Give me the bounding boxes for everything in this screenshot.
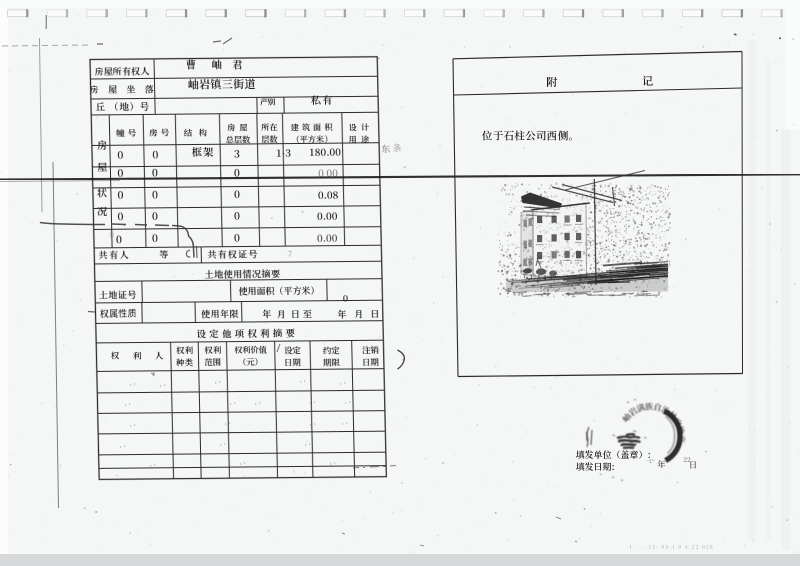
- svg-text:年: 年: [337, 306, 347, 320]
- svg-text:日: 日: [689, 459, 698, 471]
- svg-text:总层数: 总层数: [226, 134, 252, 145]
- svg-text:日期: 日期: [284, 356, 302, 368]
- svg-text:月: 月: [277, 306, 286, 320]
- svg-text:岫: 岫: [212, 57, 223, 72]
- svg-text:填发日期:: 填发日期:: [576, 460, 615, 473]
- svg-text:-c-: -c-: [647, 456, 656, 466]
- svg-text:日: 日: [291, 306, 300, 320]
- svg-text:设定: 设定: [284, 344, 302, 356]
- svg-text:0: 0: [109, 228, 114, 241]
- svg-text:等: 等: [159, 248, 168, 261]
- svg-text:0: 0: [152, 187, 158, 202]
- svg-text:1 . .. 12: 05.1 0 5-22 028: 1 . .. 12: 05.1 0 5-22 028: [629, 544, 714, 551]
- svg-text:0: 0: [234, 208, 240, 223]
- svg-text:约定: 约定: [323, 344, 341, 356]
- svg-text:0.00: 0.00: [317, 230, 338, 245]
- svg-text:使用年限: 使用年限: [200, 307, 240, 320]
- svg-text:7: 7: [288, 248, 293, 259]
- svg-text:状: 状: [97, 184, 108, 199]
- svg-text:年: 年: [657, 459, 666, 471]
- svg-text:设定他项权利摘要: 设定他项权利摘要: [195, 326, 298, 341]
- svg-text:3: 3: [234, 146, 240, 161]
- svg-text:所在: 所在: [261, 122, 278, 133]
- svg-text:权利: 权利: [204, 344, 222, 356]
- svg-text:土地证号: 土地证号: [99, 288, 137, 301]
- svg-text:共有人: 共有人: [98, 248, 130, 261]
- svg-text:岫岩镇三街道: 岫岩镇三街道: [188, 76, 256, 93]
- svg-text:房 屋: 房 屋: [226, 122, 249, 133]
- svg-text:范围: 范围: [203, 356, 222, 368]
- svg-text:0: 0: [117, 147, 123, 162]
- svg-text:0.00: 0.00: [317, 208, 338, 223]
- svg-text:0: 0: [234, 187, 240, 202]
- svg-text:房屋所有权人: 房屋所有权人: [94, 64, 149, 78]
- svg-text:房 号: 房 号: [148, 127, 170, 139]
- svg-text:位于石柱公司西侧。: 位于石柱公司西侧。: [482, 129, 579, 144]
- svg-text:期限: 期限: [323, 356, 341, 368]
- svg-text:丘 （地）号: 丘 （地）号: [95, 99, 150, 114]
- svg-text:幢 号: 幢 号: [116, 127, 137, 139]
- svg-text:利: 利: [133, 350, 142, 362]
- svg-text:0: 0: [343, 291, 348, 304]
- svg-text:（元）: （元）: [238, 357, 263, 368]
- svg-text:记: 记: [642, 73, 653, 89]
- svg-text:屋: 屋: [97, 159, 107, 174]
- svg-text:人: 人: [155, 350, 164, 362]
- svg-text:附: 附: [546, 74, 557, 90]
- svg-text:况: 况: [96, 203, 107, 218]
- svg-text:土地使用情况摘要: 土地使用情况摘要: [204, 266, 281, 281]
- svg-text:框架: 框架: [191, 145, 214, 160]
- svg-text:房 屋 坐 落: 房 屋 坐 落: [89, 82, 157, 96]
- svg-text:使用面积（平方米）: 使用面积（平方米）: [237, 284, 319, 298]
- svg-text:结 构: 结 构: [184, 127, 209, 139]
- svg-text:日: 日: [370, 306, 379, 320]
- svg-text:权: 权: [111, 350, 120, 362]
- svg-text:0: 0: [117, 187, 123, 202]
- svg-text:0: 0: [152, 231, 158, 246]
- svg-text:权利: 权利: [176, 344, 194, 356]
- svg-text:0: 0: [152, 147, 158, 162]
- svg-text:君: 君: [232, 57, 243, 72]
- svg-text:权利价值: 权利价值: [234, 345, 268, 356]
- svg-text:注销: 注销: [362, 344, 379, 356]
- svg-text:产: 产: [675, 433, 687, 443]
- svg-text:种类: 种类: [176, 356, 194, 368]
- svg-text:建 筑 面 积: 建 筑 面 积: [290, 122, 334, 133]
- svg-text:180.00: 180.00: [309, 143, 342, 158]
- svg-text:1-3: 1-3: [276, 144, 292, 159]
- svg-text:年: 年: [262, 306, 272, 320]
- svg-text:月: 月: [354, 306, 363, 320]
- svg-text:共有权证号: 共有权证号: [207, 247, 258, 260]
- svg-text:用 途: 用 途: [348, 134, 371, 145]
- svg-text:0: 0: [234, 230, 240, 245]
- svg-text:条: 条: [392, 141, 401, 154]
- svg-text:权属性质: 权属性质: [100, 307, 137, 320]
- svg-text:房: 房: [97, 137, 107, 152]
- svg-text:私有: 私有: [311, 92, 334, 107]
- svg-text:0: 0: [116, 232, 122, 247]
- svg-text:曹: 曹: [186, 57, 197, 72]
- svg-text:设 计: 设 计: [349, 122, 371, 133]
- svg-text:东: 东: [381, 142, 390, 155]
- svg-text:日期: 日期: [362, 356, 380, 368]
- svg-text:0.08: 0.08: [318, 187, 339, 202]
- svg-text:产别: 产别: [260, 97, 276, 108]
- svg-text:0: 0: [117, 209, 123, 224]
- svg-text:至: 至: [303, 306, 312, 320]
